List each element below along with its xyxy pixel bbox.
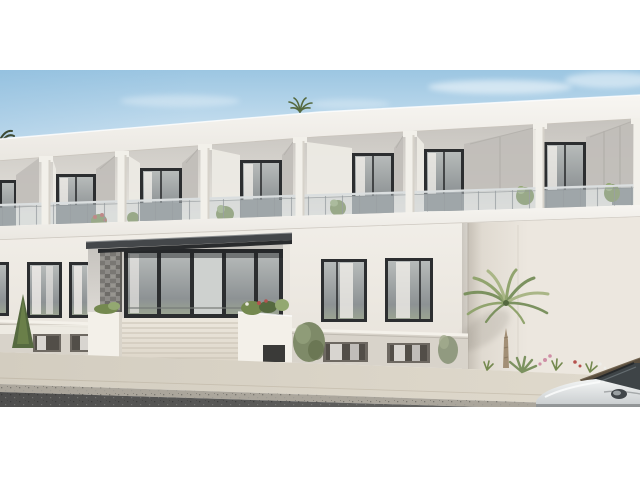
screenshot-canvas bbox=[0, 0, 640, 480]
ground-window bbox=[27, 262, 62, 318]
stone-pillar-shade bbox=[120, 252, 122, 318]
stair-planter-right bbox=[238, 299, 292, 368]
architectural-render bbox=[0, 0, 640, 480]
planter-vent bbox=[263, 345, 285, 362]
car-lower-shadow bbox=[536, 404, 640, 407]
entrance-stairs bbox=[100, 318, 252, 361]
basement-window bbox=[323, 342, 368, 362]
ground-window bbox=[0, 262, 9, 316]
bush bbox=[293, 322, 325, 362]
letterbox-bottom bbox=[0, 407, 640, 480]
ground-window bbox=[385, 258, 433, 322]
basement-window bbox=[387, 343, 430, 363]
ground-window bbox=[321, 259, 367, 322]
basement-window bbox=[33, 334, 61, 352]
letterbox-top bbox=[0, 0, 640, 70]
ground-floor bbox=[0, 217, 640, 377]
entrance-door bbox=[194, 253, 222, 314]
